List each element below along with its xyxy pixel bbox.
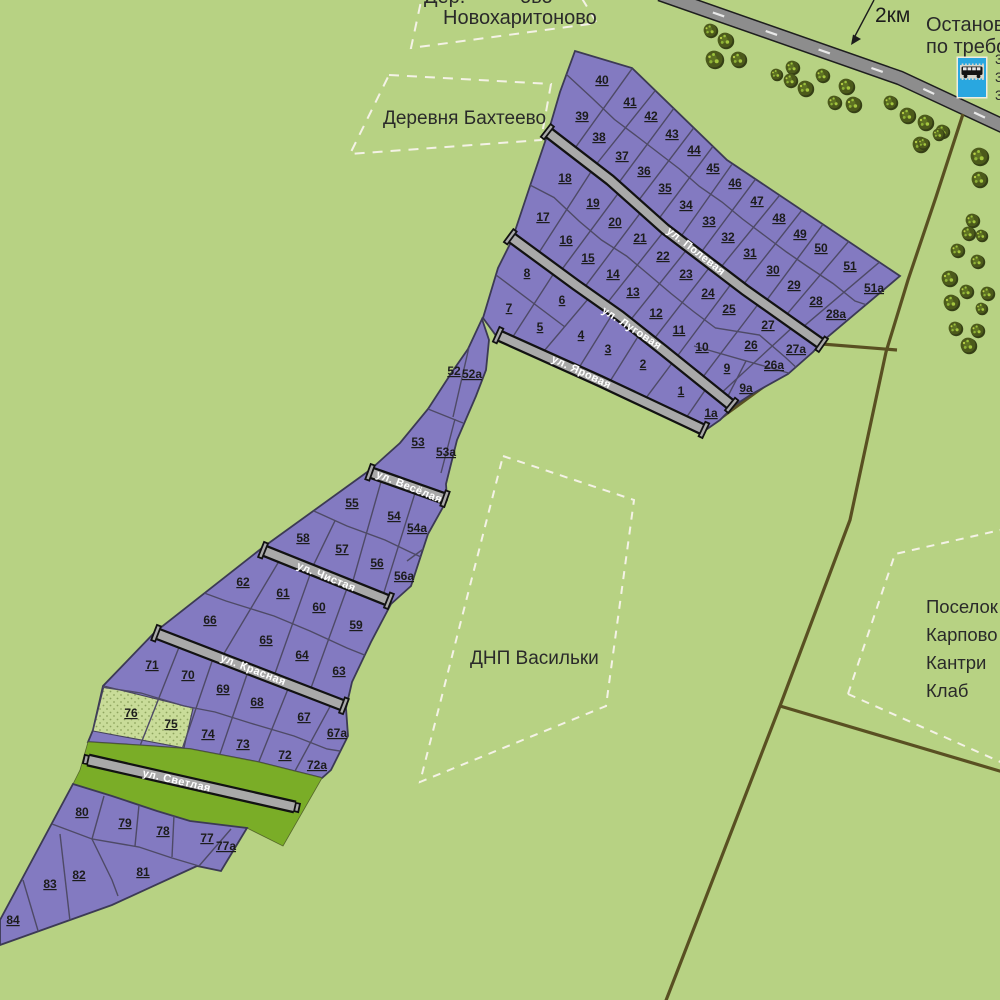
- svg-text:6: 6: [559, 293, 566, 307]
- svg-text:8: 8: [524, 266, 531, 280]
- svg-text:35: 35: [658, 181, 672, 195]
- svg-text:84: 84: [6, 913, 20, 927]
- svg-text:28а: 28а: [826, 307, 846, 321]
- svg-text:73: 73: [236, 737, 250, 751]
- svg-text:72: 72: [278, 748, 292, 762]
- svg-text:32: 32: [721, 230, 735, 244]
- svg-text:54а: 54а: [407, 521, 427, 535]
- svg-text:55: 55: [345, 496, 359, 510]
- svg-text:77а: 77а: [216, 839, 236, 853]
- svg-text:70: 70: [181, 668, 195, 682]
- svg-text:47: 47: [750, 194, 764, 208]
- svg-text:Кантри: Кантри: [926, 652, 986, 673]
- svg-text:10: 10: [695, 340, 709, 354]
- svg-text:Новохаритоново: Новохаритоново: [443, 7, 597, 29]
- svg-text:39: 39: [995, 87, 1000, 103]
- svg-text:56: 56: [370, 556, 384, 570]
- svg-text:ДНП Васильки: ДНП Васильки: [470, 648, 599, 669]
- svg-text:65: 65: [259, 633, 273, 647]
- svg-text:11: 11: [673, 323, 686, 337]
- svg-text:72а: 72а: [307, 758, 327, 772]
- svg-text:25: 25: [722, 302, 736, 316]
- svg-text:18: 18: [558, 171, 572, 185]
- svg-text:14: 14: [606, 267, 620, 281]
- svg-text:29: 29: [787, 278, 801, 292]
- svg-text:81: 81: [136, 865, 150, 879]
- svg-text:39: 39: [575, 109, 589, 123]
- svg-text:3: 3: [605, 342, 612, 356]
- svg-text:67а: 67а: [327, 726, 347, 740]
- svg-text:53: 53: [411, 435, 425, 449]
- svg-text:4: 4: [578, 328, 585, 342]
- svg-text:23: 23: [679, 267, 693, 281]
- svg-text:49: 49: [793, 227, 807, 241]
- svg-text:36: 36: [995, 51, 1000, 67]
- svg-text:71: 71: [145, 658, 159, 672]
- svg-text:15: 15: [581, 251, 595, 265]
- svg-text:61: 61: [276, 586, 290, 600]
- svg-text:56а: 56а: [394, 569, 414, 583]
- svg-text:76: 76: [124, 706, 138, 720]
- svg-text:30: 30: [766, 263, 780, 277]
- svg-text:53а: 53а: [436, 445, 456, 459]
- svg-text:38: 38: [592, 130, 606, 144]
- svg-text:57: 57: [335, 542, 349, 556]
- svg-text:80: 80: [75, 805, 89, 819]
- svg-text:51: 51: [843, 259, 857, 273]
- svg-text:36: 36: [637, 164, 651, 178]
- svg-text:58: 58: [296, 531, 310, 545]
- svg-text:9а: 9а: [739, 381, 753, 395]
- svg-text:43: 43: [665, 127, 679, 141]
- svg-text:42: 42: [644, 109, 658, 123]
- svg-text:28: 28: [809, 294, 823, 308]
- svg-text:46: 46: [728, 176, 742, 190]
- svg-text:1: 1: [678, 384, 685, 398]
- svg-text:48: 48: [772, 211, 786, 225]
- svg-text:34: 34: [679, 198, 693, 212]
- svg-text:68: 68: [250, 695, 264, 709]
- svg-text:Остановка: Остановка: [926, 14, 1000, 36]
- svg-text:78: 78: [156, 824, 170, 838]
- svg-text:51а: 51а: [864, 281, 884, 295]
- svg-text:9: 9: [724, 361, 731, 375]
- svg-text:59: 59: [349, 618, 363, 632]
- svg-text:77: 77: [200, 831, 214, 845]
- svg-text:38: 38: [995, 69, 1000, 85]
- svg-text:27а: 27а: [786, 342, 806, 356]
- svg-text:26: 26: [744, 338, 758, 352]
- svg-text:Дер.: Дер.: [424, 0, 465, 8]
- svg-text:45: 45: [706, 161, 720, 175]
- svg-text:67: 67: [297, 710, 311, 724]
- svg-text:2: 2: [640, 357, 647, 371]
- svg-text:40: 40: [595, 73, 609, 87]
- svg-text:63: 63: [332, 664, 346, 678]
- svg-text:52а: 52а: [462, 367, 482, 381]
- svg-text:31: 31: [743, 246, 757, 260]
- svg-text:33: 33: [702, 214, 716, 228]
- svg-text:Деревня Бахтеево: Деревня Бахтеево: [383, 108, 546, 129]
- svg-text:64: 64: [295, 648, 309, 662]
- svg-text:50: 50: [814, 241, 828, 255]
- svg-text:44: 44: [687, 143, 701, 157]
- svg-text:54: 54: [387, 509, 401, 523]
- svg-text:75: 75: [164, 717, 178, 731]
- svg-text:13: 13: [626, 285, 640, 299]
- svg-text:22: 22: [656, 249, 670, 263]
- svg-text:Карпово: Карпово: [926, 624, 998, 645]
- svg-text:по требованию: по требованию: [926, 36, 1000, 58]
- svg-text:2км: 2км: [875, 4, 910, 27]
- svg-text:74: 74: [201, 727, 215, 741]
- svg-text:66: 66: [203, 613, 217, 627]
- svg-text:69: 69: [216, 682, 230, 696]
- svg-text:24: 24: [701, 286, 715, 300]
- svg-text:82: 82: [72, 868, 86, 882]
- svg-text:37: 37: [615, 149, 629, 163]
- svg-text:7: 7: [506, 301, 513, 315]
- svg-text:ово: ово: [520, 0, 553, 8]
- svg-text:12: 12: [649, 306, 663, 320]
- svg-text:1а: 1а: [704, 406, 718, 420]
- svg-text:Поселок: Поселок: [926, 596, 999, 617]
- svg-text:62: 62: [236, 575, 250, 589]
- svg-text:20: 20: [608, 215, 622, 229]
- svg-text:5: 5: [537, 320, 544, 334]
- svg-text:Клаб: Клаб: [926, 680, 968, 701]
- svg-text:16: 16: [559, 233, 573, 247]
- svg-text:79: 79: [118, 816, 132, 830]
- svg-text:26а: 26а: [764, 358, 784, 372]
- svg-text:27: 27: [761, 318, 775, 332]
- svg-text:19: 19: [586, 196, 600, 210]
- svg-text:41: 41: [623, 95, 637, 109]
- svg-text:83: 83: [43, 877, 57, 891]
- svg-text:17: 17: [536, 210, 550, 224]
- svg-text:21: 21: [633, 231, 647, 245]
- svg-text:52: 52: [447, 364, 461, 378]
- svg-text:60: 60: [312, 600, 326, 614]
